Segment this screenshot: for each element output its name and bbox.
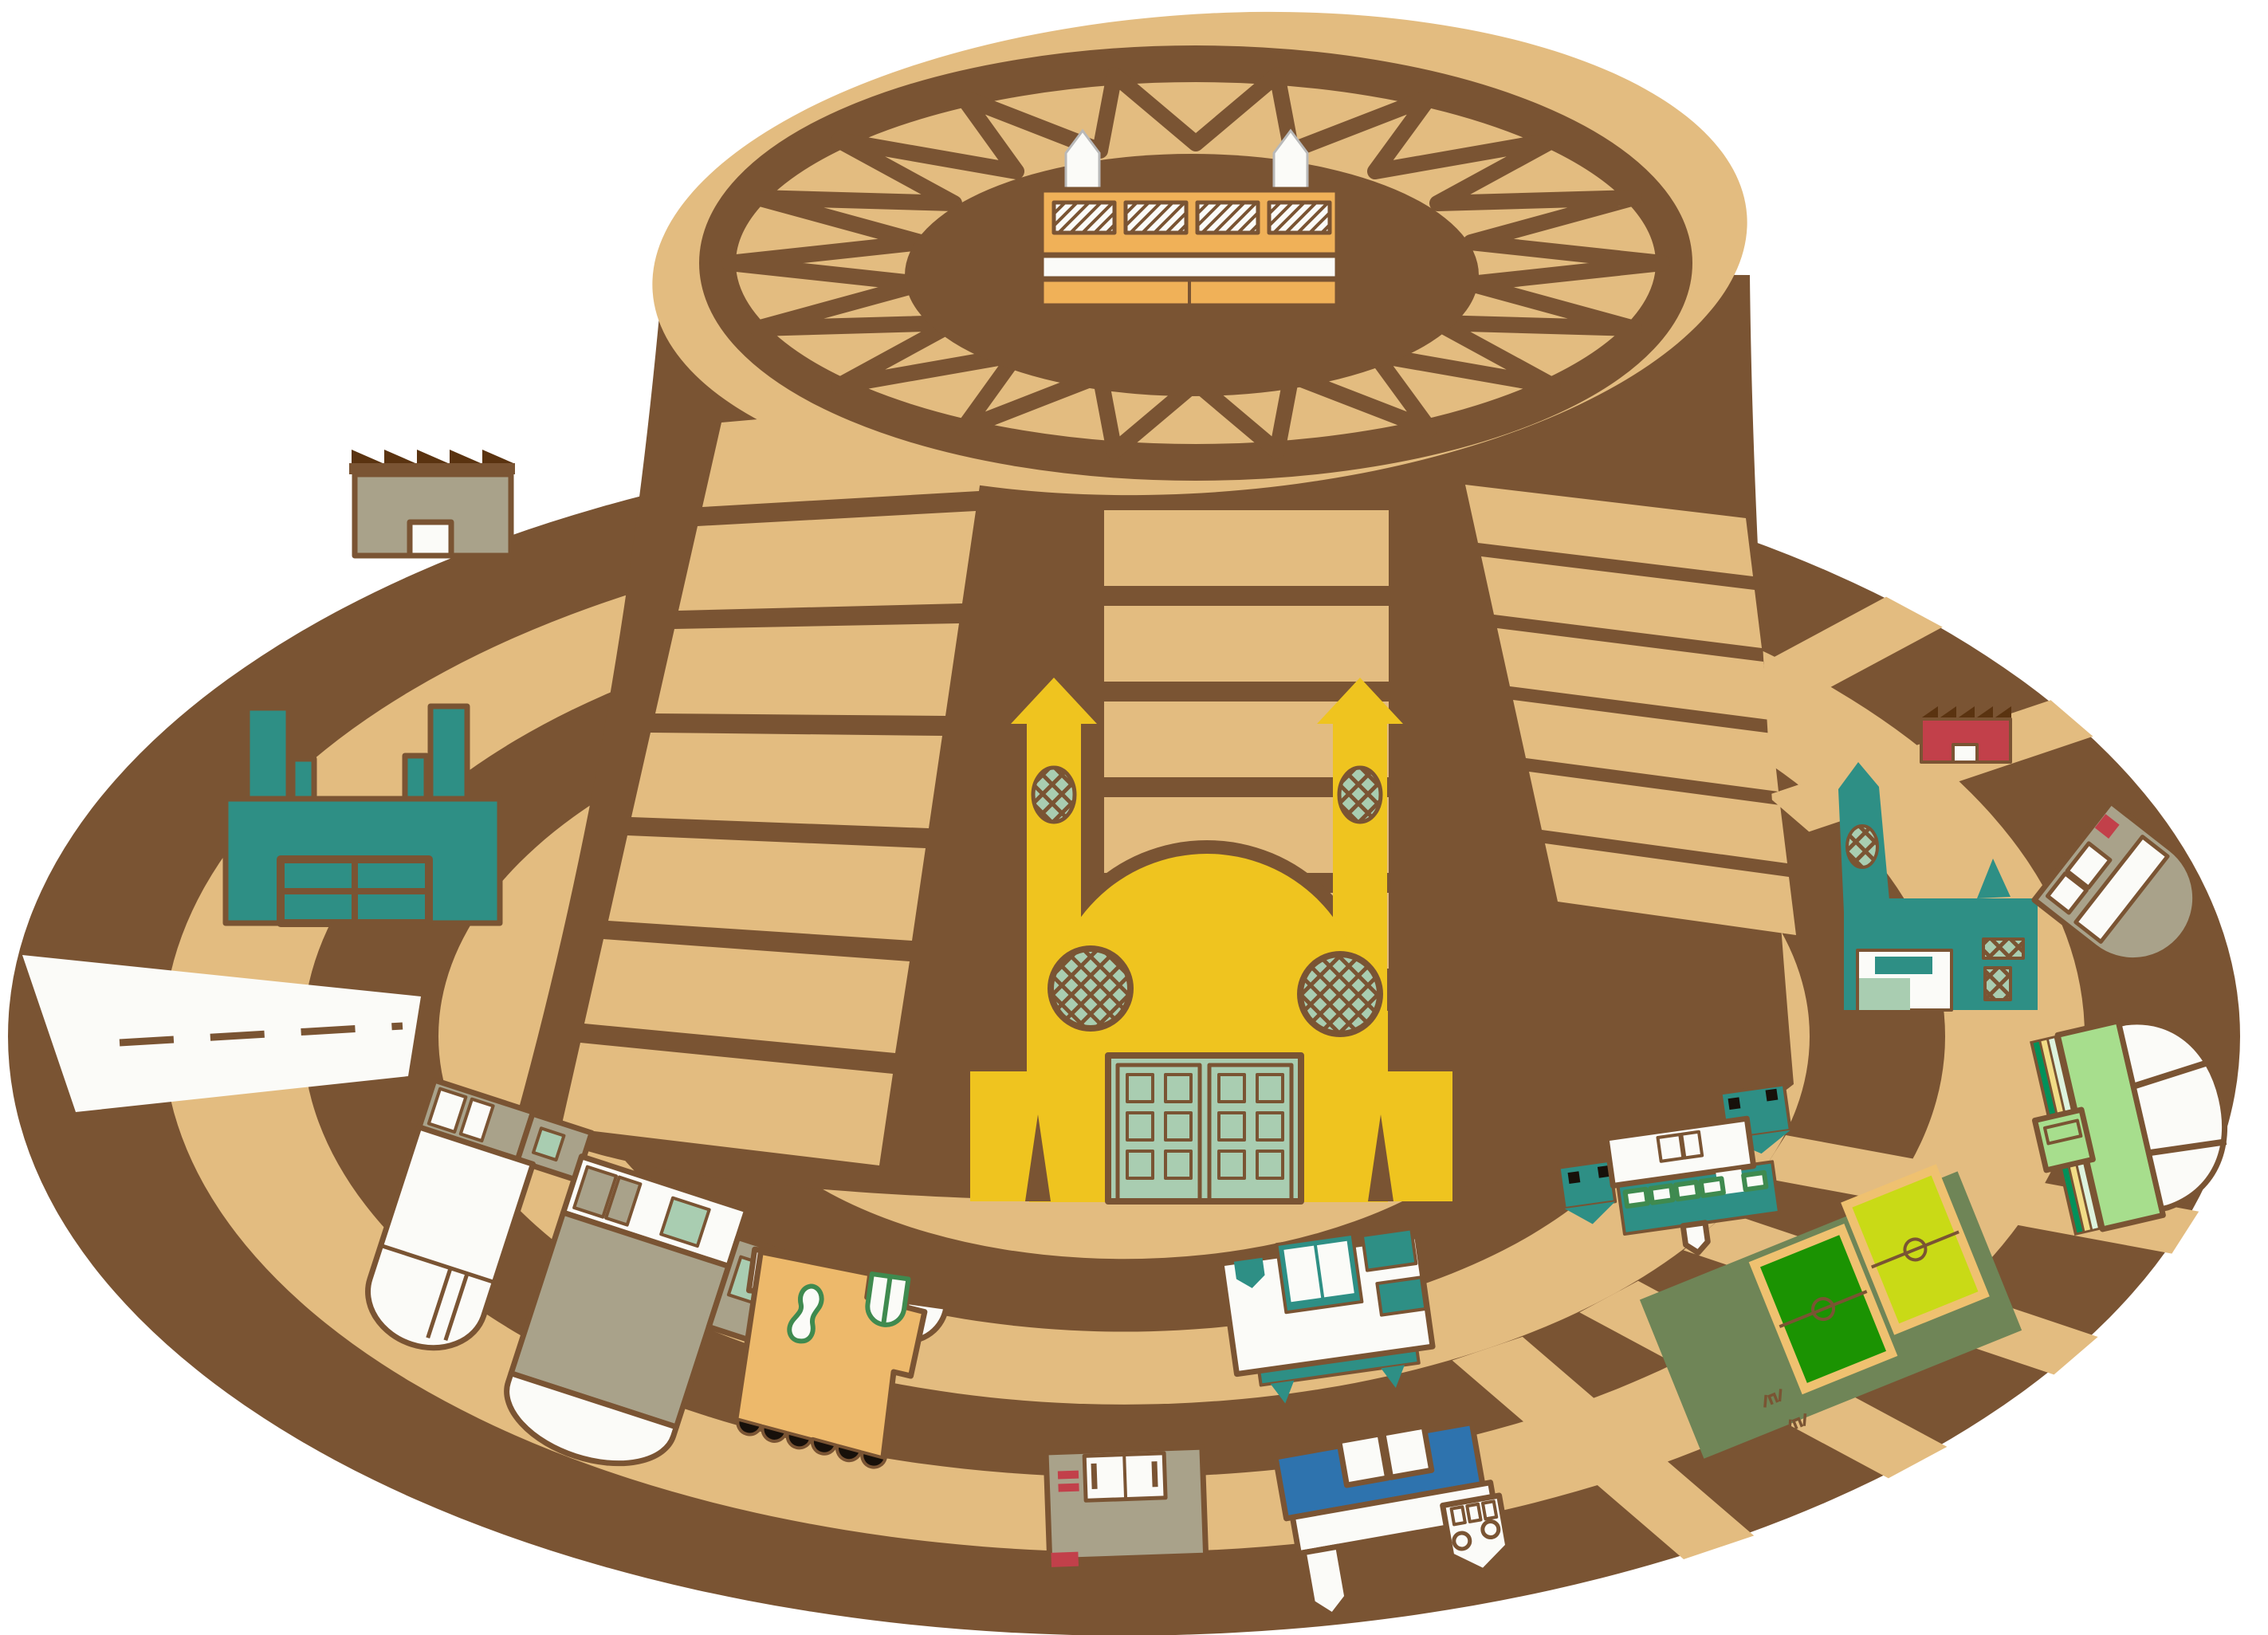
- grandstand-band: [1041, 255, 1338, 279]
- sawtooth-roof-tooth: [417, 450, 448, 463]
- band-window: [1743, 1173, 1766, 1189]
- tower-lattice-window: [1339, 768, 1381, 822]
- band-window: [1625, 1189, 1648, 1206]
- sawtooth-warehouse: [349, 450, 515, 556]
- khaki-shop: [1046, 1447, 1206, 1567]
- church-window: [1339, 1434, 1388, 1485]
- wing-window: [1728, 1097, 1741, 1110]
- cathedral-doors: [1108, 1055, 1301, 1201]
- shop-red-sign: [1058, 1484, 1079, 1492]
- illustration-stage: [0, 0, 2268, 1635]
- grandstand-hatched-window: [1054, 202, 1114, 233]
- terminal-window: [1657, 1134, 1683, 1161]
- crown-band-rung: [631, 733, 942, 828]
- wing-window: [1568, 1171, 1581, 1184]
- pavilion-teal-panel: [1362, 1228, 1417, 1270]
- shop-red-base: [1051, 1552, 1079, 1567]
- sawtooth-roof-tooth: [482, 450, 513, 463]
- panel-sage-block: [1859, 978, 1910, 1010]
- shop-window-tick: [1151, 1461, 1158, 1487]
- crown-band-rung: [678, 511, 976, 611]
- factory-door: [1953, 745, 1977, 762]
- church-lattice-window: [1985, 968, 2011, 1000]
- crown-band-rung: [1104, 510, 1389, 586]
- tower-lattice-window: [1033, 768, 1075, 822]
- grandstand-hatched-window: [1269, 202, 1330, 233]
- shop-window-tick: [1091, 1464, 1098, 1489]
- crown-band-rung: [655, 623, 959, 716]
- spire-lattice-window: [1847, 826, 1877, 867]
- dome-rose-window: [1051, 949, 1130, 1028]
- grandstand-hatched-window: [1126, 202, 1186, 233]
- church-lattice-window: [1983, 939, 2023, 958]
- church-window: [1383, 1426, 1432, 1477]
- band-window: [1650, 1185, 1673, 1202]
- grandstand-hatched-window: [1197, 202, 1258, 233]
- sawtooth-roof-tooth: [450, 450, 481, 463]
- wing-window: [1766, 1089, 1779, 1102]
- dome-rose-window: [1300, 954, 1380, 1034]
- crown-band-rung: [1104, 606, 1389, 682]
- warehouse-door: [410, 522, 451, 556]
- band-window: [1676, 1182, 1698, 1199]
- arcade-arch-window: [865, 1274, 908, 1327]
- shop-red-sign: [1058, 1471, 1079, 1480]
- shop-window-divider: [1124, 1455, 1126, 1499]
- panel-teal-window: [1875, 957, 1932, 974]
- illustration-canvas: [0, 0, 2268, 1635]
- terminal-window: [1681, 1132, 1702, 1158]
- sawtooth-roof-tooth: [384, 450, 415, 463]
- band-window: [1701, 1178, 1724, 1195]
- pavilion-teal-panel: [1377, 1277, 1425, 1315]
- sawtooth-roof-tooth: [352, 450, 383, 463]
